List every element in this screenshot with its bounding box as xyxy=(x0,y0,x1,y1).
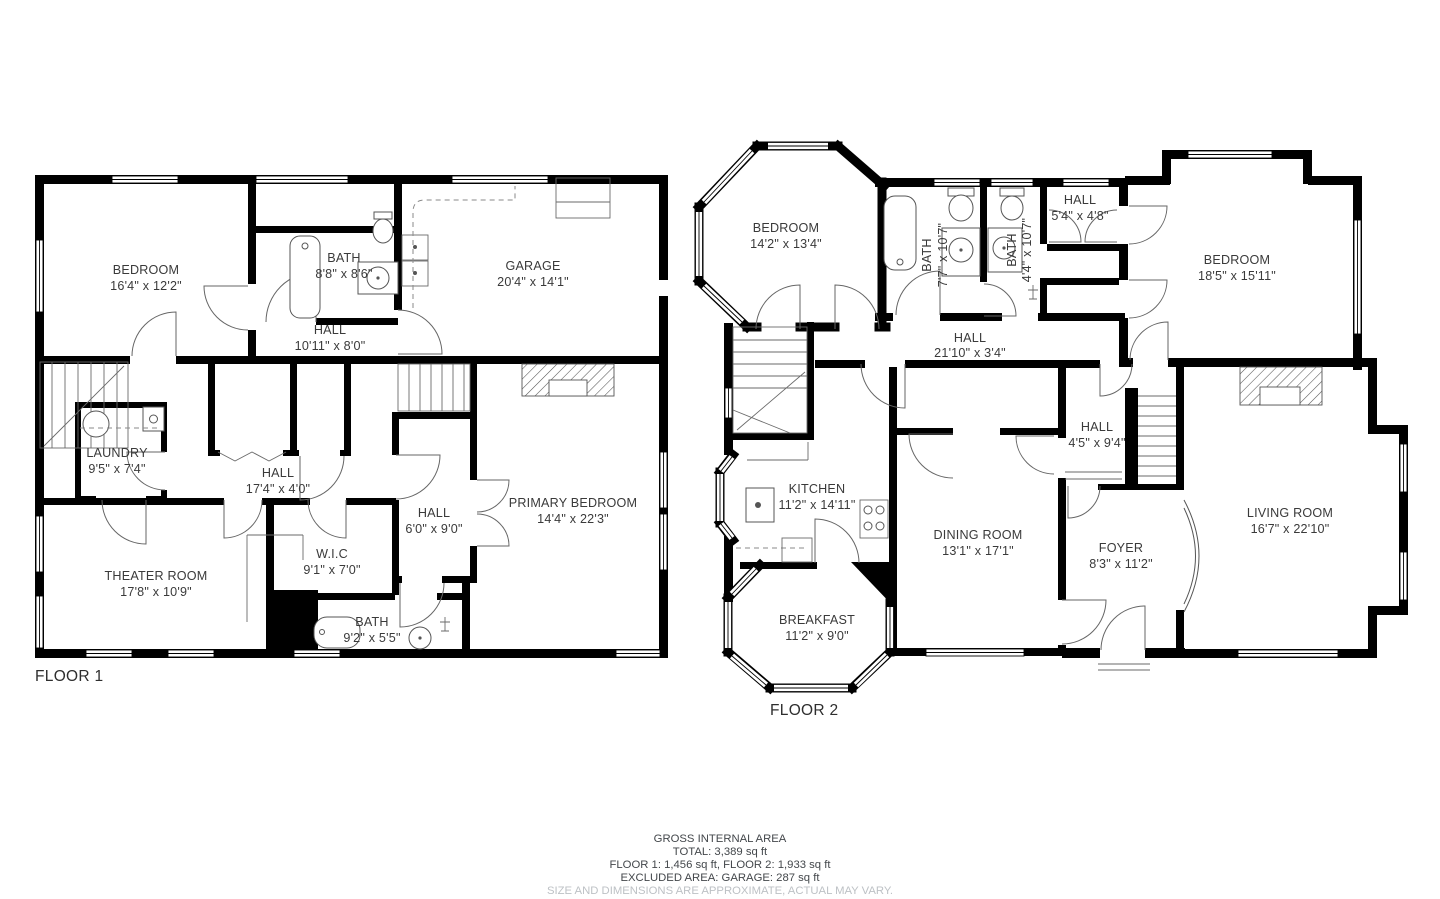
floor1-label: FLOOR 1 xyxy=(35,668,103,685)
room-f2-hall1-dims: 5'4" x 4'8" xyxy=(1051,209,1108,223)
room-f2-kitchen-name: KITCHEN xyxy=(789,482,846,496)
room-f2-kitchen-dims: 11'2" x 14'11" xyxy=(778,498,855,512)
room-f1-hall3-name: HALL xyxy=(418,506,450,520)
area-summary-floors: FLOOR 1: 1,456 sq ft, FLOOR 2: 1,933 sq … xyxy=(0,859,1440,872)
room-f1-garage-name: GARAGE xyxy=(505,259,560,273)
room-f2-bedroom1-name: BEDROOM xyxy=(753,221,819,235)
room-f2-bedroom1-dims: 14'2" x 13'4" xyxy=(750,237,822,251)
floor2-label: FLOOR 2 xyxy=(770,702,838,719)
room-f1-hall1-name: HALL xyxy=(314,323,346,337)
room-f2-breakfast-dims: 11'2" x 9'0" xyxy=(785,629,849,643)
room-f2-foyer-dims: 8'3" x 11'2" xyxy=(1089,557,1153,571)
room-f2-hall3-name: HALL xyxy=(1081,420,1113,434)
floorplan-canvas: BEDROOM 16'4" x 12'2" BATH 8'8" x 8'6" G… xyxy=(0,0,1440,899)
room-f2-breakfast-name: BREAKFAST xyxy=(779,613,855,627)
room-f2-hall2-dims: 21'10" x 3'4" xyxy=(934,346,1006,360)
room-f1-garage-dims: 20'4" x 14'1" xyxy=(497,275,569,289)
floor1-plan: BEDROOM 16'4" x 12'2" BATH 8'8" x 8'6" G… xyxy=(35,175,668,685)
room-f1-hall2-name: HALL xyxy=(262,466,294,480)
room-f2-bath2-name: BATH xyxy=(1005,233,1019,266)
floor2-fireplace xyxy=(1240,367,1322,405)
room-f2-foyer-name: FOYER xyxy=(1099,541,1143,555)
area-summary-excluded: EXCLUDED AREA: GARAGE: 287 sq ft xyxy=(0,872,1440,885)
room-f1-bedroom-name: BEDROOM xyxy=(113,263,179,277)
floor1-fireplace xyxy=(522,364,614,396)
room-f1-bath1-dims: 8'8" x 8'6" xyxy=(315,267,372,281)
room-f1-wic-dims: 9'1" x 7'0" xyxy=(303,563,360,577)
room-f1-hall2-dims: 17'4" x 4'0" xyxy=(246,482,310,496)
room-f2-bedroom2-dims: 18'5" x 15'11" xyxy=(1198,269,1276,283)
room-f1-laundry-name: LAUNDRY xyxy=(86,446,148,460)
room-f1-bath1-name: BATH xyxy=(327,251,360,265)
room-f1-hall3-dims: 6'0" x 9'0" xyxy=(405,522,462,536)
room-f2-dining-name: DINING ROOM xyxy=(934,528,1023,542)
floor2-labels: BEDROOM 14'2" x 13'4" BATH 7'7" x 10'7" … xyxy=(750,193,1333,719)
room-f2-bath2-dims: 4'4" x 10'7" xyxy=(1020,218,1034,282)
area-summary-total: TOTAL: 3,389 sq ft xyxy=(0,846,1440,859)
area-summary: GROSS INTERNAL AREA TOTAL: 3,389 sq ft F… xyxy=(0,833,1440,898)
room-f2-bath1-name: BATH xyxy=(920,238,934,271)
room-f1-laundry-dims: 9'5" x 7'4" xyxy=(88,462,145,476)
room-f2-hall3-dims: 4'5" x 9'4" xyxy=(1068,436,1125,450)
room-f2-hall1-name: HALL xyxy=(1064,193,1096,207)
room-f1-wic-name: W.I.C xyxy=(316,547,348,561)
floorplan-page: BEDROOM 16'4" x 12'2" BATH 8'8" x 8'6" G… xyxy=(0,0,1440,899)
room-f1-primary-name: PRIMARY BEDROOM xyxy=(509,496,638,510)
room-f1-bedroom-dims: 16'4" x 12'2" xyxy=(110,279,182,293)
room-f1-bath2-name: BATH xyxy=(355,615,388,629)
room-f1-bath2-dims: 9'2" x 5'5" xyxy=(343,631,400,645)
room-f1-hall1-dims: 10'11" x 8'0" xyxy=(295,339,366,353)
room-f1-theater-dims: 17'8" x 10'9" xyxy=(120,585,192,599)
room-f2-hall2-name: HALL xyxy=(954,331,986,345)
area-summary-disclaimer: SIZE AND DIMENSIONS ARE APPROXIMATE, ACT… xyxy=(0,885,1440,898)
floor2-plan: BEDROOM 14'2" x 13'4" BATH 7'7" x 10'7" … xyxy=(699,146,1408,719)
room-f2-bedroom2-name: BEDROOM xyxy=(1204,253,1270,267)
room-f2-bath1-dims: 7'7" x 10'7" xyxy=(936,223,950,287)
room-f1-primary-dims: 14'4" x 22'3" xyxy=(537,512,609,526)
room-f2-dining-dims: 13'1" x 17'1" xyxy=(942,544,1014,558)
room-f1-theater-name: THEATER ROOM xyxy=(105,569,208,583)
area-summary-title: GROSS INTERNAL AREA xyxy=(0,833,1440,846)
room-f2-living-dims: 16'7" x 22'10" xyxy=(1251,522,1330,536)
room-f2-living-name: LIVING ROOM xyxy=(1247,506,1333,520)
